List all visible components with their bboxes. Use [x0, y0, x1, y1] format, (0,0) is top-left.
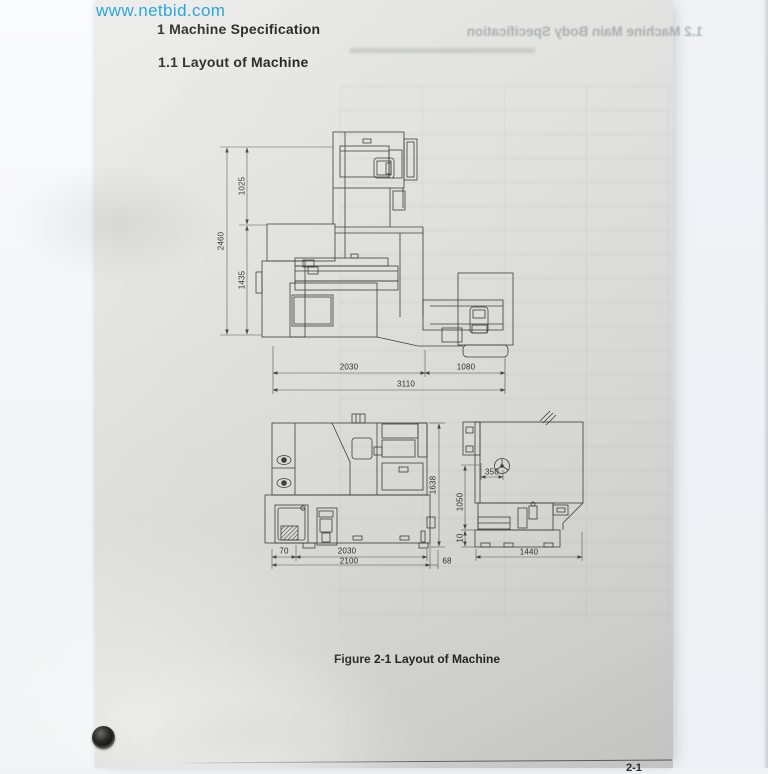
dim-label-10: 10: [456, 533, 465, 542]
dim-label-1050: 1050: [456, 493, 465, 512]
binder-grommet: [92, 726, 115, 749]
figure-caption: Figure 2-1 Layout of Machine: [334, 652, 500, 666]
dim-label-1435: 1435: [238, 271, 247, 290]
dim-label-1440: 1440: [520, 548, 539, 557]
dim-label-1025: 1025: [238, 177, 247, 196]
dim-label-2100: 2100: [340, 557, 359, 566]
dim-label-2460: 2460: [217, 232, 226, 251]
side-elevation-view: [256, 132, 513, 357]
dim-label-1080: 1080: [457, 363, 476, 372]
page-number: 2-1: [626, 762, 642, 774]
dim-label-1638: 1638: [429, 476, 438, 495]
front-view: [265, 414, 435, 548]
dim-label-350: 350: [485, 468, 499, 477]
dim-label-70: 70: [279, 547, 288, 556]
photo-of-manual-page: 1.2 Machine Main Body Specification 1 Ma…: [0, 0, 768, 768]
netbid-watermark: www.netbid.com: [96, 1, 225, 21]
dim-label-2030-top: 2030: [340, 363, 359, 372]
dim-label-3110: 3110: [397, 380, 415, 389]
dim-label-68: 68: [442, 557, 451, 566]
dim-label-2030-front: 2030: [338, 547, 357, 556]
